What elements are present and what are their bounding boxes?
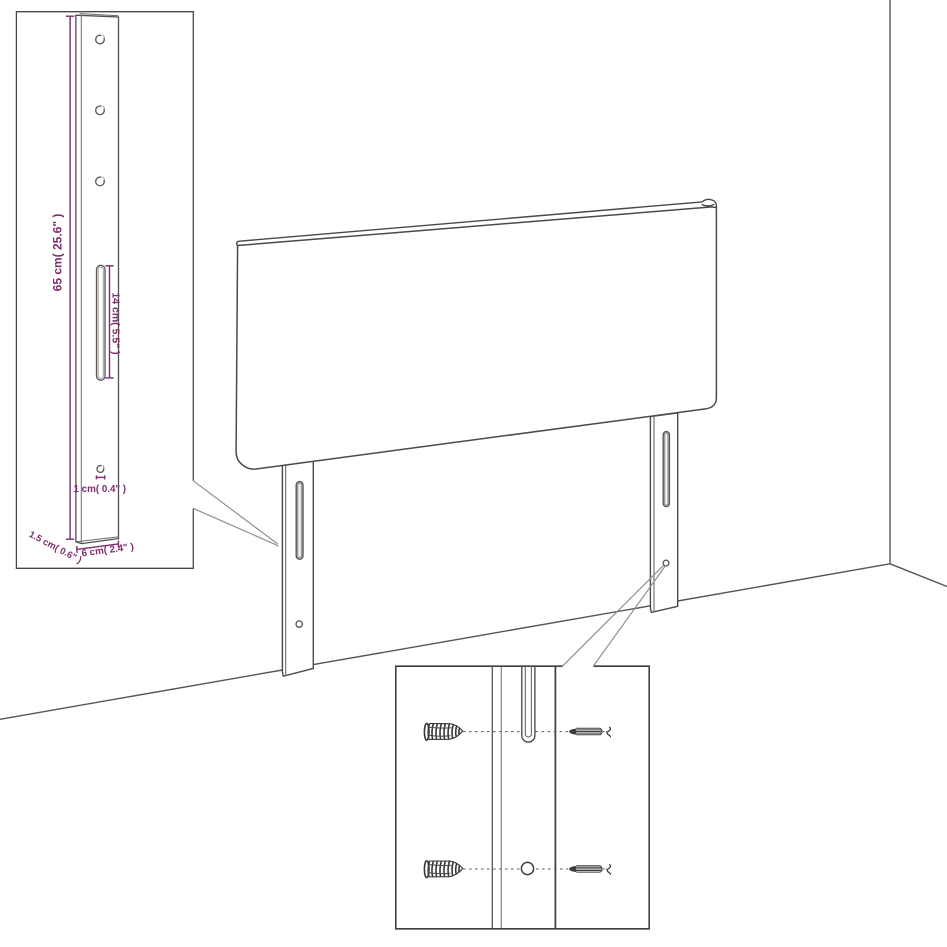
svg-text:1 cm( 0.4" ): 1 cm( 0.4" )	[74, 484, 127, 495]
svg-text:14 cm( 5.5" ): 14 cm( 5.5" )	[110, 292, 122, 354]
svg-text:65 cm( 25.6" ): 65 cm( 25.6" )	[51, 214, 65, 292]
